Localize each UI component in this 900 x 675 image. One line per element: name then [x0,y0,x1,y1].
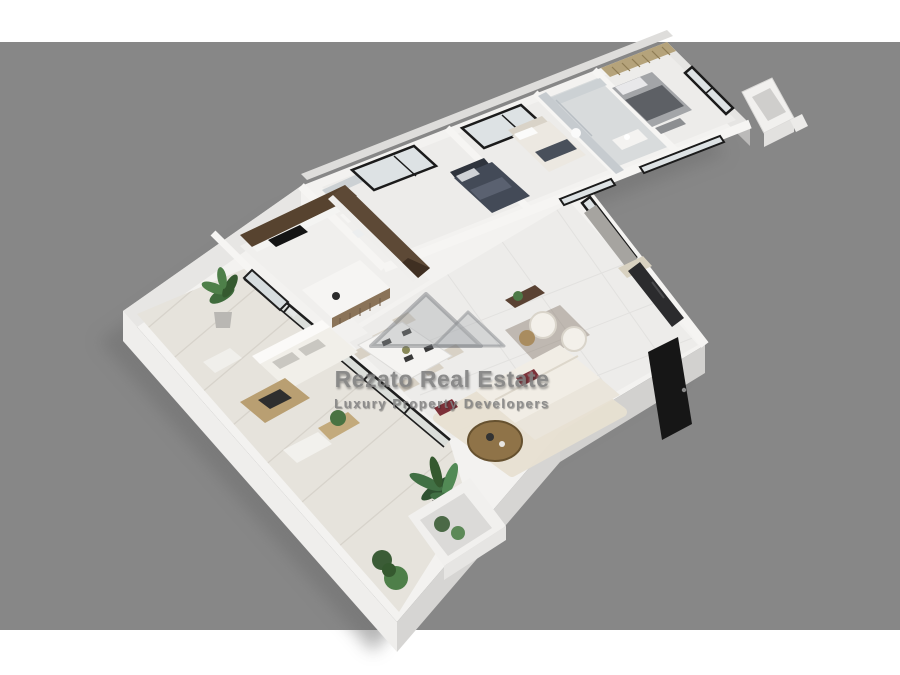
round-coffee-table [468,421,522,461]
armchair [562,327,586,351]
balcony-top-right [742,78,808,147]
floor-plan-render: Rezato Real Estate Luxury Property Devel… [0,0,900,675]
apartment-3d-scene [0,0,900,675]
